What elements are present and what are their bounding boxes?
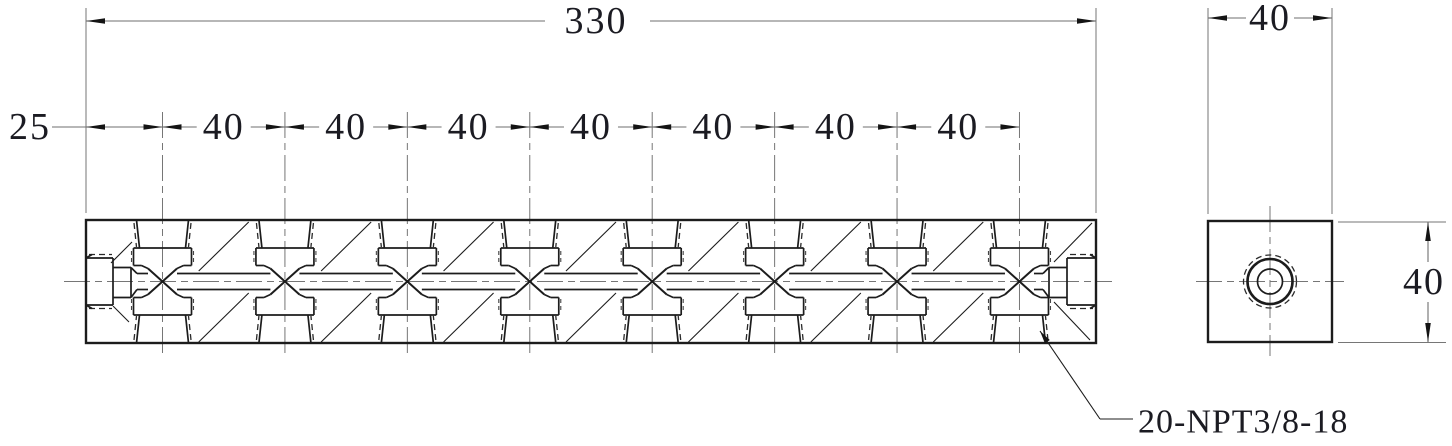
hatch-line [199, 222, 249, 271]
hatch-line [111, 242, 132, 263]
arrowhead-left [407, 124, 426, 130]
hatch-line [688, 222, 738, 271]
port-centerlines [163, 112, 1020, 355]
arrowhead-left [652, 124, 671, 130]
dimension-end-height: 40 [1403, 222, 1445, 342]
arrowhead-down [1425, 323, 1431, 342]
arrowhead-up [1425, 222, 1431, 241]
port-pitch-label: 40 [815, 106, 857, 148]
hatch-line [688, 293, 738, 342]
centerlines [64, 206, 1344, 356]
hatch-line [444, 222, 494, 271]
arrowhead-right [1077, 18, 1096, 24]
thread-callout-leader: 20-NPT3/8-18 [1040, 331, 1348, 441]
arrowhead-right [1313, 15, 1332, 21]
port-pitch-label: 40 [448, 106, 490, 148]
arrowhead-left [86, 124, 105, 130]
dimension-port-pitch: 40 [652, 106, 774, 148]
port-pitch-label: 40 [570, 106, 612, 148]
arrowhead-right [388, 124, 407, 130]
hatch-line [1054, 302, 1090, 340]
port-pitch-label: 40 [325, 106, 367, 148]
end-width-label: 40 [1249, 0, 1291, 39]
arrowhead-left [86, 18, 105, 24]
hatch-line [566, 222, 616, 271]
end-height-label: 40 [1403, 261, 1445, 303]
port-pitch-label: 40 [203, 106, 245, 148]
dimension-port-pitch: 40 [285, 106, 407, 148]
drawing-canvas: 330 25 40404040404040 40 40 20 [0, 0, 1452, 446]
arrowhead-left [285, 124, 304, 130]
arrowhead-right [878, 124, 897, 130]
hatch-line [113, 306, 129, 322]
arrowhead-right [756, 124, 775, 130]
arrowhead-right [1000, 124, 1019, 130]
hatch-line [1054, 223, 1092, 262]
hatch-line [321, 293, 371, 342]
hatch-line [811, 293, 861, 342]
thread-callout-label: 20-NPT3/8-18 [1138, 404, 1348, 441]
arrowhead-left [1208, 15, 1227, 21]
arrowhead-left [530, 124, 549, 130]
dimension-port-pitch: 40 [775, 106, 897, 148]
arrowhead-right [144, 124, 163, 130]
hatch-line [933, 293, 983, 342]
overall-length-label: 330 [565, 0, 628, 42]
extension-lines [86, 8, 1446, 343]
hatch-line [566, 293, 616, 342]
technical-drawing: 330 25 40404040404040 40 40 20 [0, 0, 1452, 446]
dimension-port-pitch: 40 [530, 106, 652, 148]
dimension-port-pitch: 40 [163, 106, 285, 148]
arrowhead-right [266, 124, 285, 130]
arrowhead-right [511, 124, 530, 130]
dimension-overall-length: 330 [86, 0, 1096, 42]
hatch-line [811, 222, 861, 271]
arrowhead-right [633, 124, 652, 130]
front-view [86, 112, 1096, 355]
port-pitch-label: 40 [937, 106, 979, 148]
dimension-port-pitch-row: 40404040404040 [163, 106, 1020, 148]
port-pitch-label: 40 [692, 106, 734, 148]
hatch-line [933, 222, 983, 271]
hatch-line [321, 222, 371, 271]
dimensions: 330 25 40404040404040 40 40 [9, 0, 1445, 342]
port-pair [254, 220, 316, 343]
hatch-line [444, 293, 494, 342]
arrowhead-left [163, 124, 182, 130]
dimension-end-width: 40 [1208, 0, 1332, 39]
arrowhead-left [897, 124, 916, 130]
first-port-offset-label: 25 [9, 106, 51, 148]
hatch-line [199, 293, 249, 342]
dimension-port-pitch: 40 [407, 106, 529, 148]
arrowhead-left [775, 124, 794, 130]
dimension-port-pitch: 40 [897, 106, 1019, 148]
